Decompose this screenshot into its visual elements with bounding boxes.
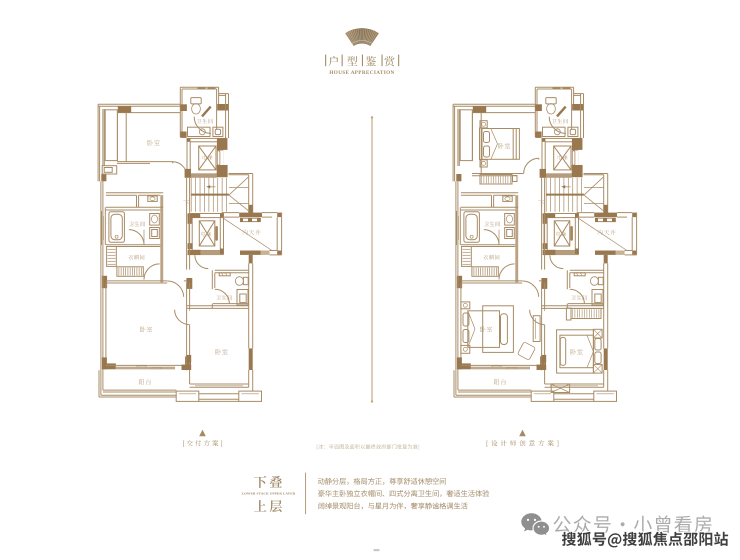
svg-text:HOUSE APPRECIATION: HOUSE APPRECIATION [329,70,394,76]
svg-text:LOWER STACK UPPER LAYER: LOWER STACK UPPER LAYER [242,491,296,495]
